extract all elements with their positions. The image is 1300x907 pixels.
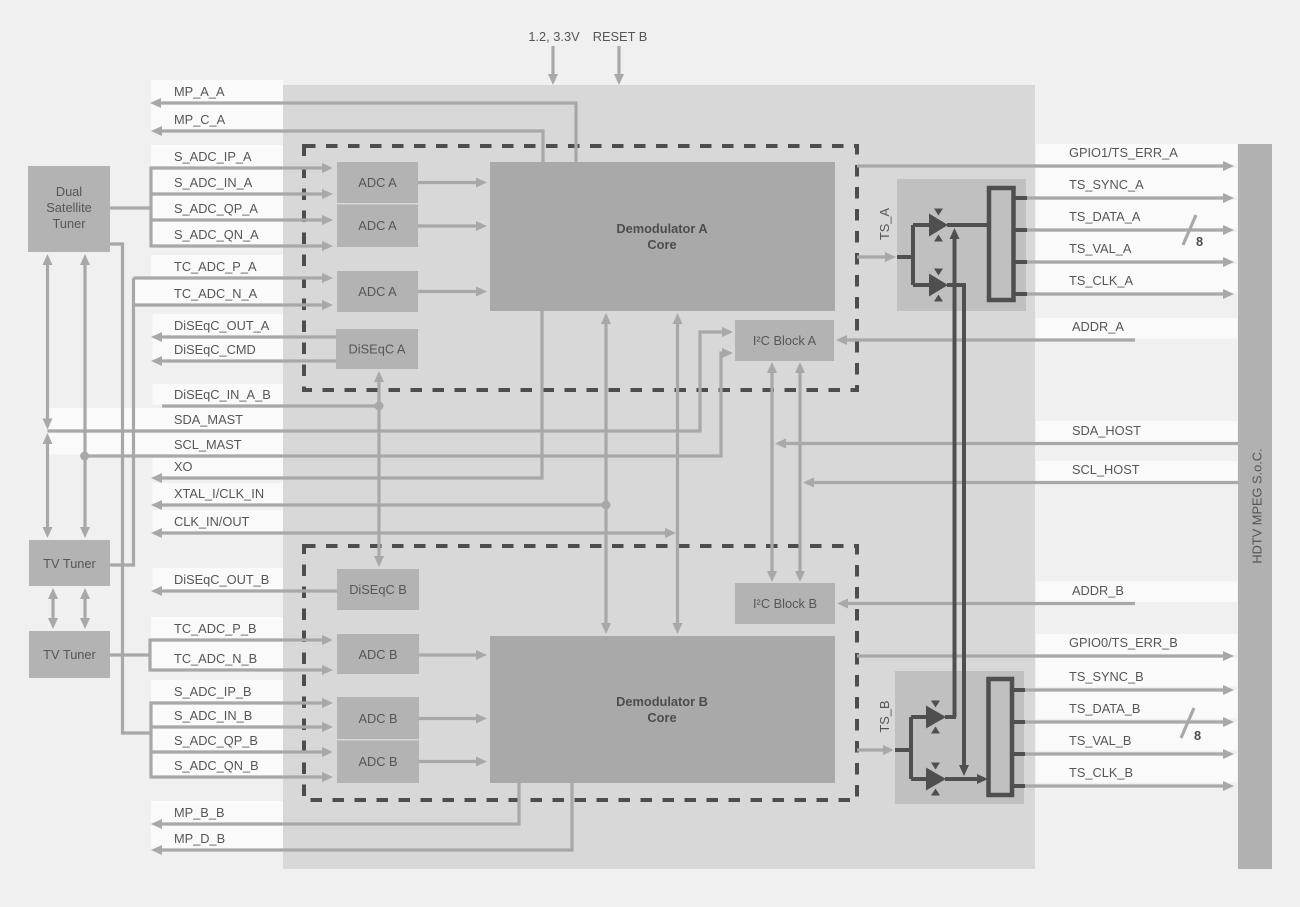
- svg-text:S_ADC_QN_A: S_ADC_QN_A: [174, 227, 259, 242]
- svg-text:S_ADC_IN_A: S_ADC_IN_A: [174, 175, 253, 190]
- svg-text:TS_DATA_A: TS_DATA_A: [1069, 209, 1141, 224]
- svg-text:MP_C_A: MP_C_A: [174, 112, 226, 127]
- svg-text:DiSEqC_OUT_B: DiSEqC_OUT_B: [174, 572, 269, 587]
- svg-text:MP_A_A: MP_A_A: [174, 84, 225, 99]
- svg-text:ADDR_B: ADDR_B: [1072, 583, 1124, 598]
- svg-text:DiSEqC_IN_A_B: DiSEqC_IN_A_B: [174, 387, 271, 402]
- svg-text:Dual: Dual: [56, 184, 82, 199]
- svg-text:TS_A: TS_A: [877, 208, 892, 240]
- svg-text:TV Tuner: TV Tuner: [43, 556, 96, 571]
- svg-text:DiSEqC_OUT_A: DiSEqC_OUT_A: [174, 318, 270, 333]
- svg-text:I²C Block A: I²C Block A: [753, 333, 817, 348]
- svg-text:Core: Core: [647, 237, 676, 252]
- svg-text:S_ADC_QP_A: S_ADC_QP_A: [174, 201, 258, 216]
- svg-text:8: 8: [1196, 234, 1203, 249]
- svg-text:TS_VAL_A: TS_VAL_A: [1069, 241, 1132, 256]
- svg-text:GPIO1/TS_ERR_A: GPIO1/TS_ERR_A: [1069, 145, 1178, 160]
- svg-text:TS_CLK_B: TS_CLK_B: [1069, 765, 1133, 780]
- svg-text:SDA_HOST: SDA_HOST: [1072, 423, 1141, 438]
- svg-text:I²C Block B: I²C Block B: [753, 596, 817, 611]
- svg-text:ADC A: ADC A: [358, 175, 397, 190]
- svg-text:XO: XO: [174, 459, 193, 474]
- svg-text:Demodulator A: Demodulator A: [616, 221, 707, 236]
- svg-text:TS_DATA_B: TS_DATA_B: [1069, 701, 1140, 716]
- svg-text:TS_VAL_B: TS_VAL_B: [1069, 733, 1131, 748]
- svg-text:TS_CLK_A: TS_CLK_A: [1069, 273, 1133, 288]
- svg-text:S_ADC_IN_B: S_ADC_IN_B: [174, 708, 252, 723]
- svg-text:TV Tuner: TV Tuner: [43, 647, 96, 662]
- svg-text:Core: Core: [647, 710, 676, 725]
- svg-text:MP_D_B: MP_D_B: [174, 831, 225, 846]
- svg-text:CLK_IN/OUT: CLK_IN/OUT: [174, 514, 250, 529]
- svg-text:ADC A: ADC A: [358, 284, 397, 299]
- svg-text:TC_ADC_P_A: TC_ADC_P_A: [174, 259, 257, 274]
- svg-text:TS_SYNC_A: TS_SYNC_A: [1069, 177, 1144, 192]
- svg-text:ADDR_A: ADDR_A: [1072, 319, 1124, 334]
- svg-text:MP_B_B: MP_B_B: [174, 805, 225, 820]
- svg-text:TS_SYNC_B: TS_SYNC_B: [1069, 669, 1144, 684]
- svg-text:HDTV MPEG S.o.C.: HDTV MPEG S.o.C.: [1250, 448, 1265, 563]
- svg-text:Demodulator B: Demodulator B: [616, 694, 708, 709]
- svg-text:S_ADC_QP_B: S_ADC_QP_B: [174, 733, 258, 748]
- svg-text:Satellite: Satellite: [46, 200, 92, 215]
- svg-text:TS_B: TS_B: [877, 700, 892, 732]
- svg-text:S_ADC_IP_B: S_ADC_IP_B: [174, 684, 252, 699]
- svg-text:ADC B: ADC B: [358, 711, 397, 726]
- svg-text:RESET B: RESET B: [593, 29, 648, 44]
- svg-text:DiSEqC B: DiSEqC B: [349, 582, 407, 597]
- svg-text:DiSEqC_CMD: DiSEqC_CMD: [174, 342, 256, 357]
- svg-text:SCL_HOST: SCL_HOST: [1072, 462, 1140, 477]
- svg-text:SDA_MAST: SDA_MAST: [174, 412, 243, 427]
- svg-text:TC_ADC_N_A: TC_ADC_N_A: [174, 286, 258, 301]
- svg-text:Tuner: Tuner: [53, 216, 87, 231]
- svg-text:TC_ADC_N_B: TC_ADC_N_B: [174, 651, 257, 666]
- svg-text:XTAL_I/CLK_IN: XTAL_I/CLK_IN: [174, 486, 264, 501]
- svg-text:8: 8: [1194, 728, 1201, 743]
- svg-text:S_ADC_QN_B: S_ADC_QN_B: [174, 758, 259, 773]
- svg-text:ADC A: ADC A: [358, 218, 397, 233]
- svg-text:GPIO0/TS_ERR_B: GPIO0/TS_ERR_B: [1069, 635, 1178, 650]
- svg-text:DiSEqC A: DiSEqC A: [349, 342, 406, 357]
- svg-text:ADC B: ADC B: [358, 754, 397, 769]
- svg-text:ADC B: ADC B: [358, 647, 397, 662]
- svg-text:S_ADC_IP_A: S_ADC_IP_A: [174, 149, 252, 164]
- svg-text:TC_ADC_P_B: TC_ADC_P_B: [174, 621, 257, 636]
- svg-text:1.2, 3.3V: 1.2, 3.3V: [528, 29, 580, 44]
- svg-text:SCL_MAST: SCL_MAST: [174, 437, 242, 452]
